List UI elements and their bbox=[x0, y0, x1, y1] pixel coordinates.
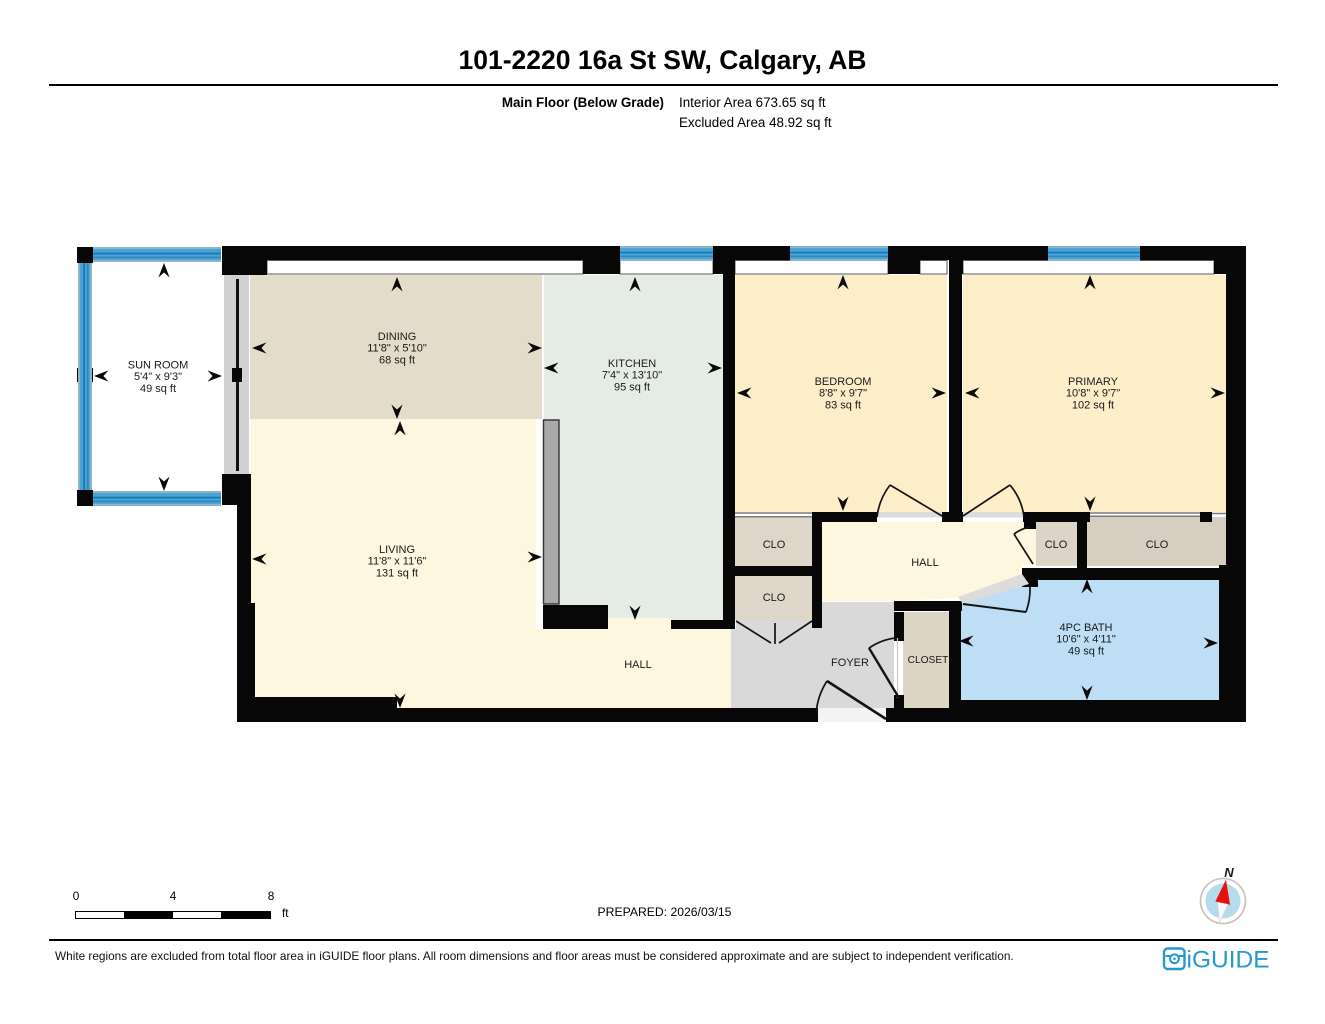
svg-text:CLO: CLO bbox=[763, 592, 786, 604]
svg-text:HALL: HALL bbox=[911, 557, 939, 569]
svg-text:LIVING: LIVING bbox=[379, 544, 415, 556]
svg-text:49 sq ft: 49 sq ft bbox=[140, 383, 176, 395]
svg-text:11'8" x 5'10": 11'8" x 5'10" bbox=[367, 343, 427, 355]
svg-text:N: N bbox=[1224, 865, 1234, 880]
svg-text:49 sq ft: 49 sq ft bbox=[1068, 645, 1104, 657]
svg-text:7'4" x 13'10": 7'4" x 13'10" bbox=[602, 370, 662, 382]
svg-text:DINING: DINING bbox=[378, 331, 417, 343]
svg-text:CLO: CLO bbox=[1146, 539, 1169, 551]
svg-text:CLO: CLO bbox=[1045, 539, 1068, 551]
svg-text:4PC BATH: 4PC BATH bbox=[1060, 622, 1113, 634]
svg-text:10'6" x 4'11": 10'6" x 4'11" bbox=[1056, 634, 1116, 646]
svg-text:95 sq ft: 95 sq ft bbox=[614, 381, 650, 393]
svg-text:11'8" x 11'6": 11'8" x 11'6" bbox=[368, 556, 427, 568]
svg-text:8'8" x 9'7": 8'8" x 9'7" bbox=[819, 388, 867, 400]
svg-text:83 sq ft: 83 sq ft bbox=[825, 399, 861, 411]
svg-text:131 sq ft: 131 sq ft bbox=[376, 567, 418, 579]
svg-text:FOYER: FOYER bbox=[831, 657, 869, 669]
svg-text:iGUIDE: iGUIDE bbox=[1187, 947, 1270, 974]
svg-text:PRIMARY: PRIMARY bbox=[1068, 376, 1119, 388]
svg-text:BEDROOM: BEDROOM bbox=[815, 376, 872, 388]
svg-text:SUN ROOM: SUN ROOM bbox=[128, 360, 189, 372]
svg-text:68 sq ft: 68 sq ft bbox=[379, 354, 415, 366]
svg-text:5'4" x 9'3": 5'4" x 9'3" bbox=[134, 371, 182, 383]
svg-text:KITCHEN: KITCHEN bbox=[608, 358, 656, 370]
svg-text:102 sq ft: 102 sq ft bbox=[1072, 399, 1114, 411]
svg-text:HALL: HALL bbox=[624, 659, 652, 671]
svg-text:CLO: CLO bbox=[763, 539, 786, 551]
svg-text:CLOSET: CLOSET bbox=[908, 655, 949, 666]
svg-text:10'8" x 9'7": 10'8" x 9'7" bbox=[1066, 388, 1120, 400]
